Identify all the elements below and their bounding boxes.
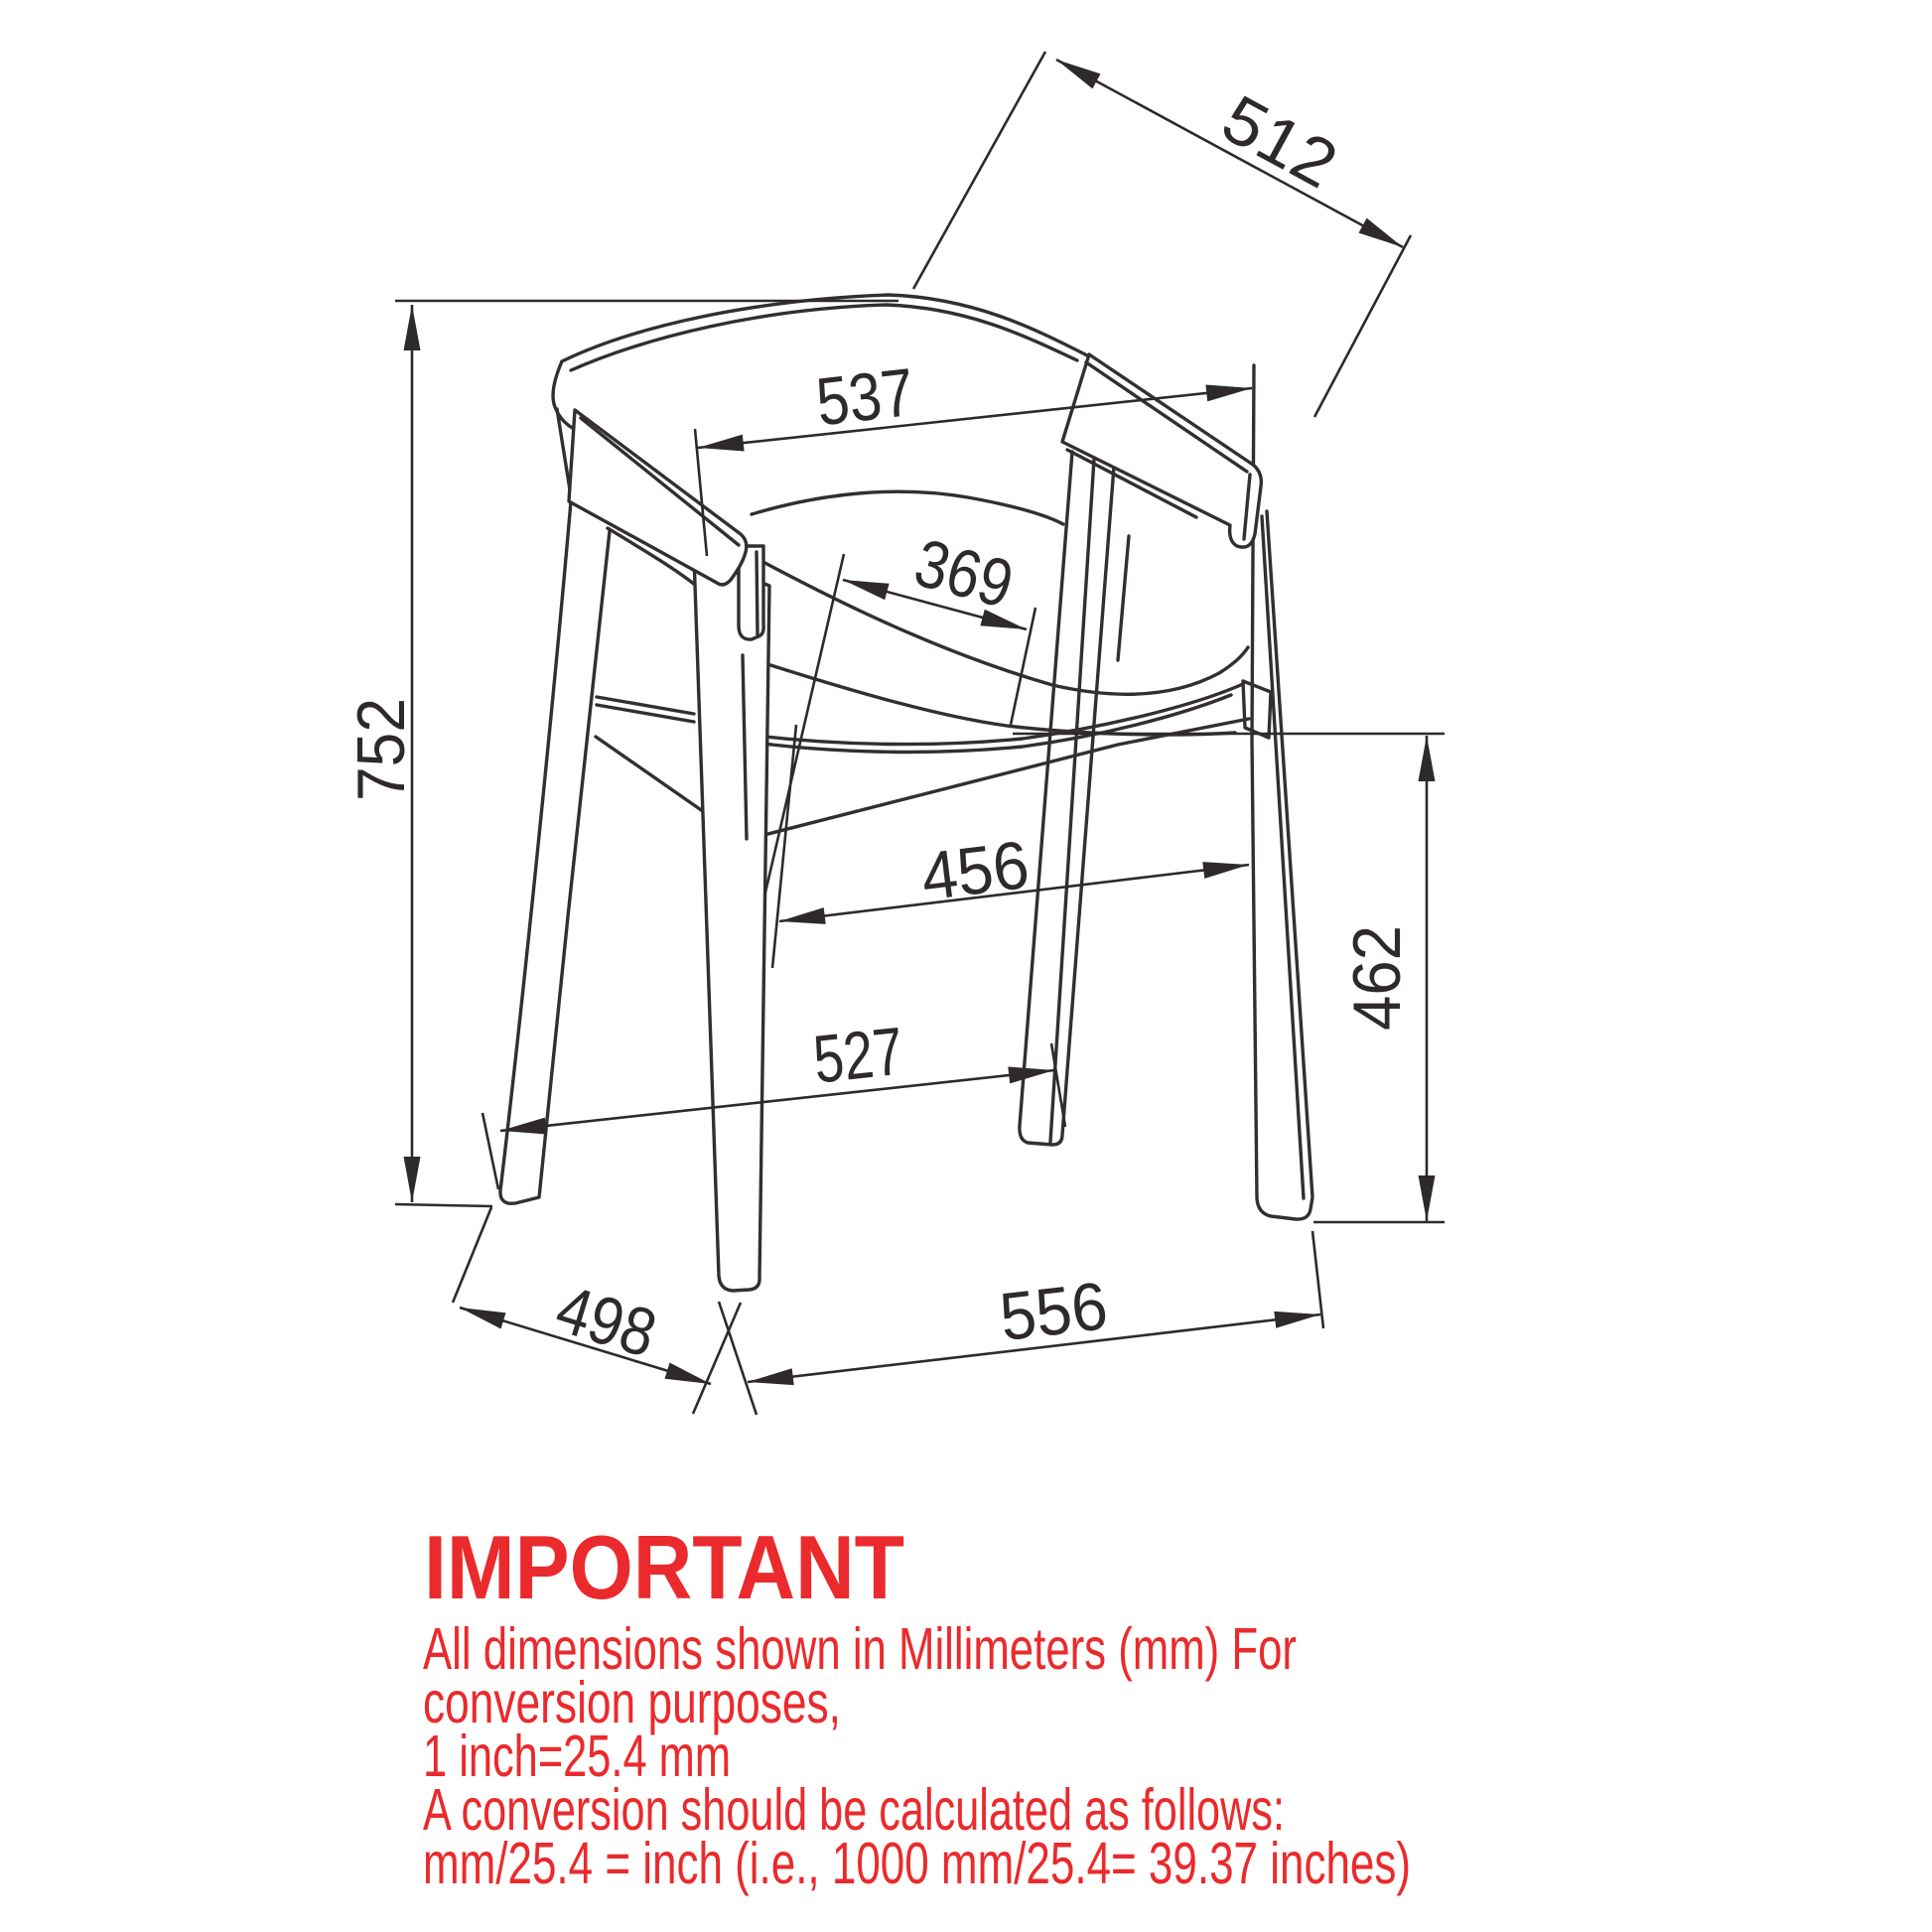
svg-text:mm/25.4 = inch (i.e., 1000 mm/: mm/25.4 = inch (i.e., 1000 mm/25.4= 39.3… — [423, 1831, 1411, 1896]
svg-text:IMPORTANT: IMPORTANT — [424, 1518, 904, 1618]
svg-text:527: 527 — [810, 1014, 906, 1098]
svg-text:752: 752 — [344, 698, 419, 801]
svg-text:537: 537 — [812, 354, 917, 441]
svg-text:456: 456 — [917, 827, 1033, 915]
svg-text:369: 369 — [907, 524, 1021, 622]
svg-text:498: 498 — [548, 1271, 665, 1372]
svg-text:512: 512 — [1210, 80, 1349, 203]
svg-text:462: 462 — [1339, 925, 1415, 1031]
svg-text:556: 556 — [996, 1268, 1111, 1355]
